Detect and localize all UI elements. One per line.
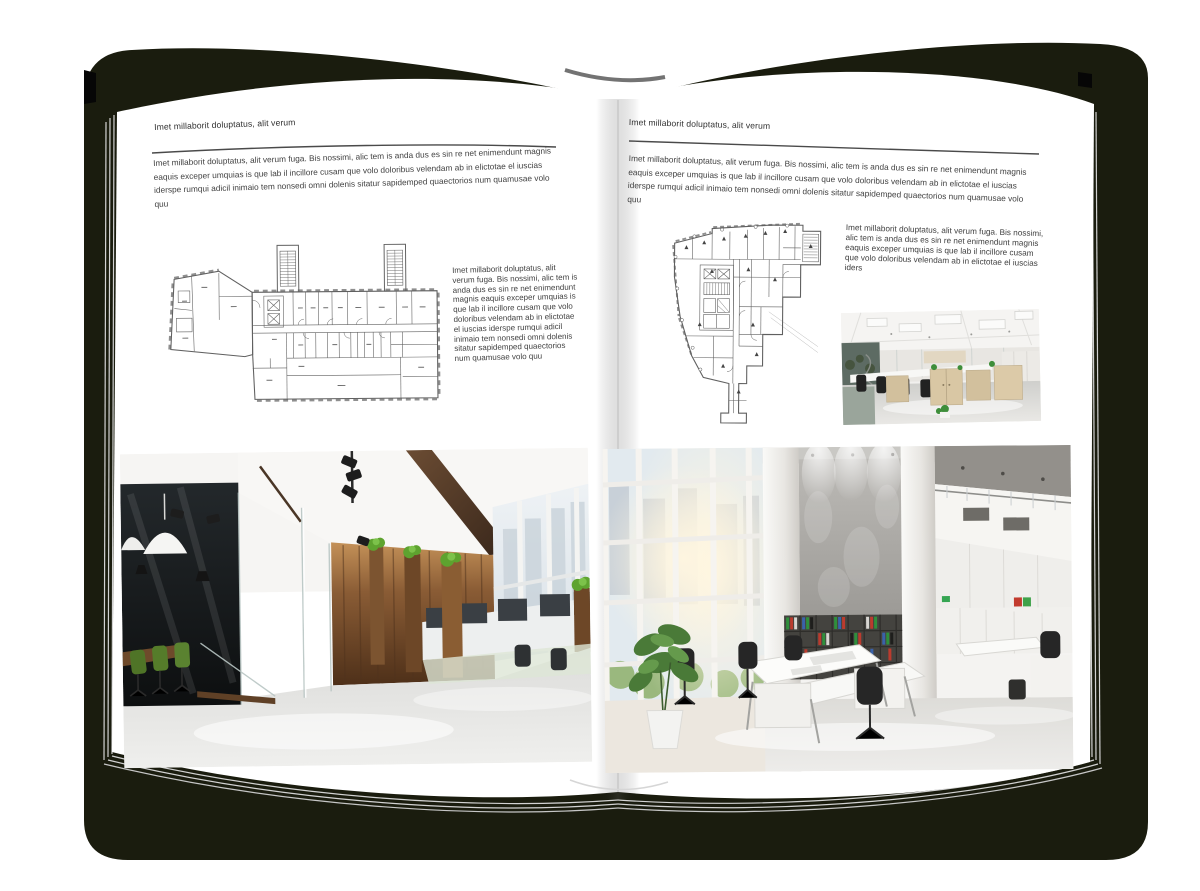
left-floor-plan	[156, 230, 450, 419]
right-small-office-photo	[841, 309, 1041, 425]
right-office-photo	[603, 445, 1074, 773]
plan-door-markers	[683, 228, 812, 394]
left-plan-caption: Imet millaborit doluptatus, alit verum f…	[452, 262, 581, 363]
left-office-photo	[120, 448, 592, 769]
right-plan-caption: Imet millaborit doluptatus, alit verum f…	[844, 223, 1043, 279]
right-floor-plan	[649, 217, 852, 430]
